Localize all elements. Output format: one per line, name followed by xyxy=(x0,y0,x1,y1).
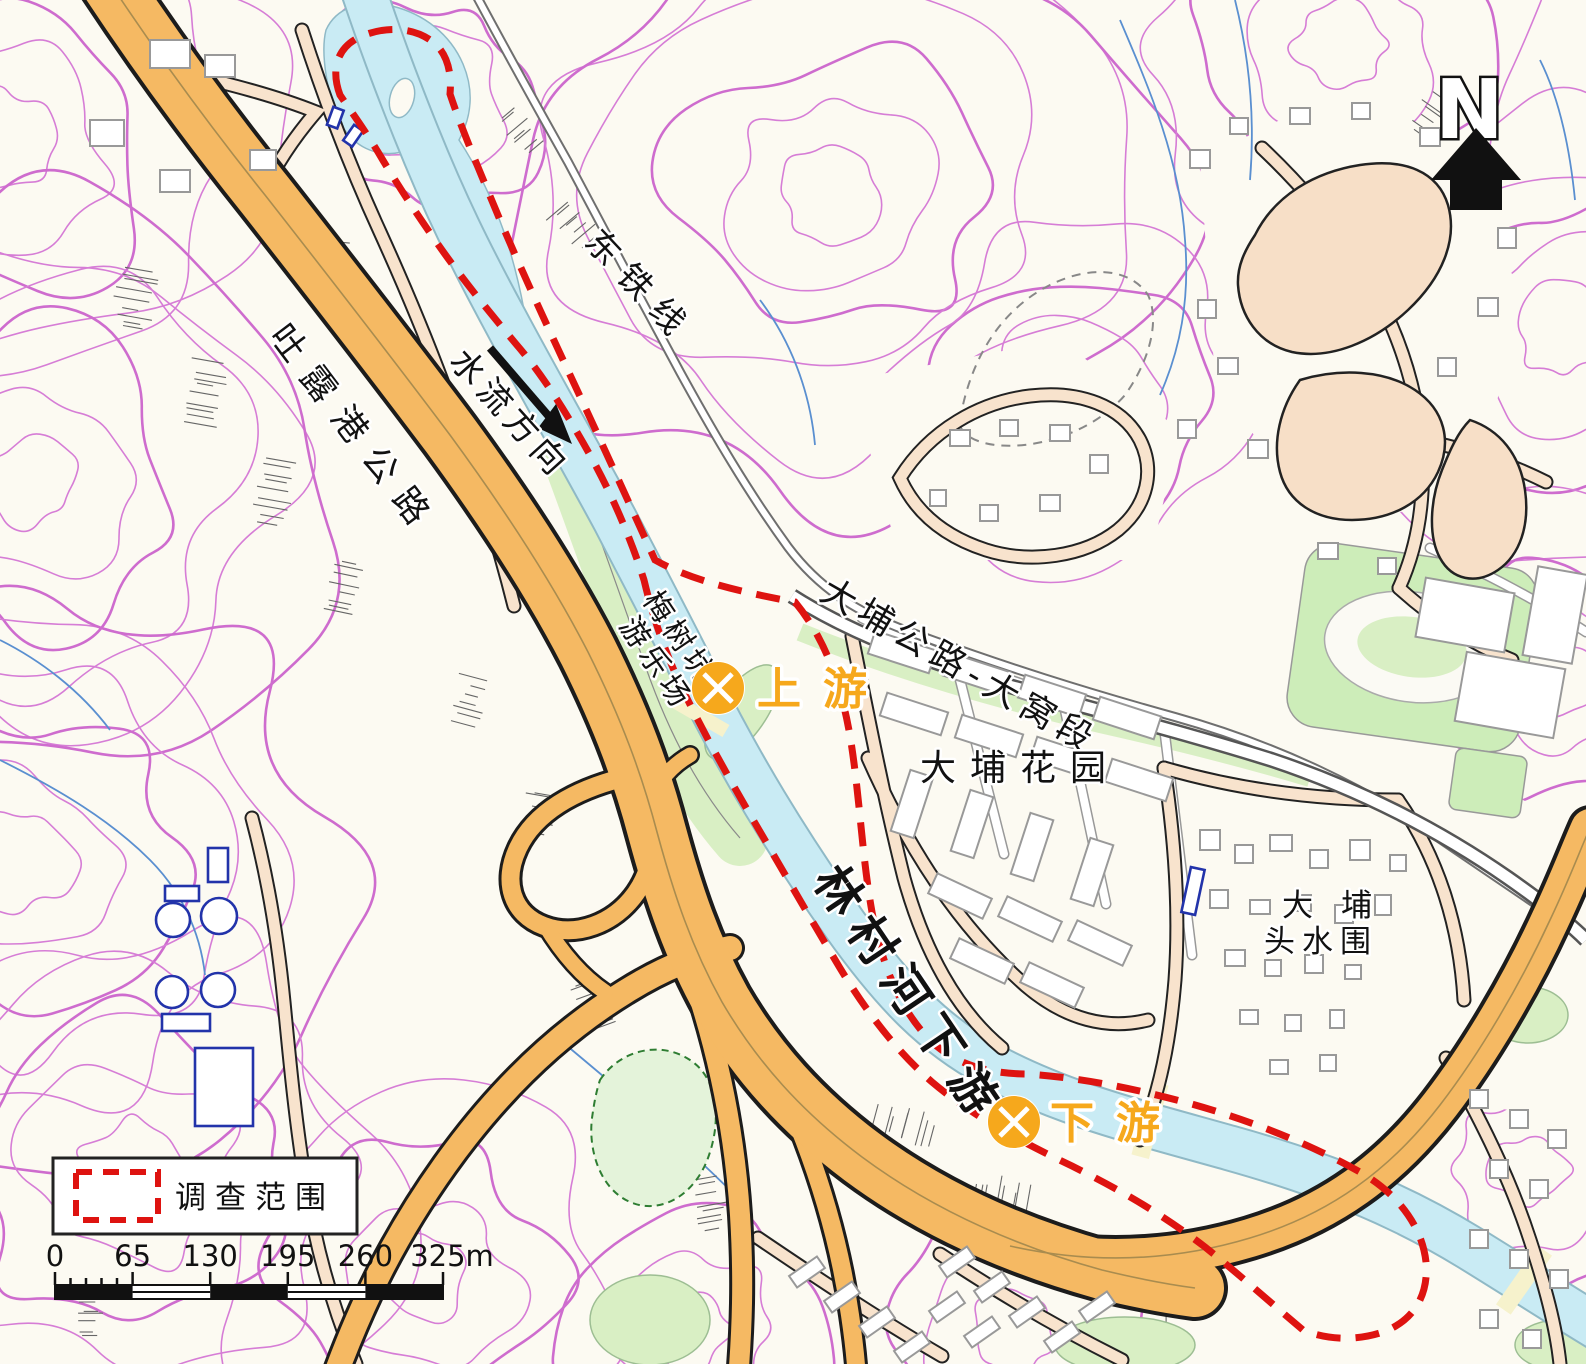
downstream-label: 下游 xyxy=(1050,1098,1182,1149)
upstream-marker: 上游 xyxy=(691,661,889,715)
scale-tick-5: 325m xyxy=(410,1239,494,1273)
topographic-map: 水流方向 吐露港公路 东铁线 大埔公路-大窝段 大埔花园 大埔 头水围 梅树坑 … xyxy=(0,0,1586,1364)
legend: 调查范围 xyxy=(53,1158,357,1234)
scale-tick-1: 65 xyxy=(114,1239,151,1273)
downstream-marker: 下游 xyxy=(987,1095,1182,1149)
tai-po-garden-label: 大埔花园 xyxy=(920,748,1120,789)
tai-po-tau-label-line2: 头水围 xyxy=(1264,924,1378,960)
scale-tick-4: 260 xyxy=(338,1239,393,1273)
tai-po-tau-label-line1: 大埔 xyxy=(1282,888,1400,924)
upstream-label: 上游 xyxy=(757,664,889,715)
scale-tick-3: 195 xyxy=(260,1239,315,1273)
map-stage: 水流方向 吐露港公路 东铁线 大埔公路-大窝段 大埔花园 大埔 头水围 梅树坑 … xyxy=(0,0,1586,1364)
scale-tick-2: 130 xyxy=(183,1239,238,1273)
legend-survey-label: 调查范围 xyxy=(175,1180,335,1216)
scale-bar-segments xyxy=(55,1285,443,1299)
scale-tick-0: 0 xyxy=(46,1239,64,1273)
